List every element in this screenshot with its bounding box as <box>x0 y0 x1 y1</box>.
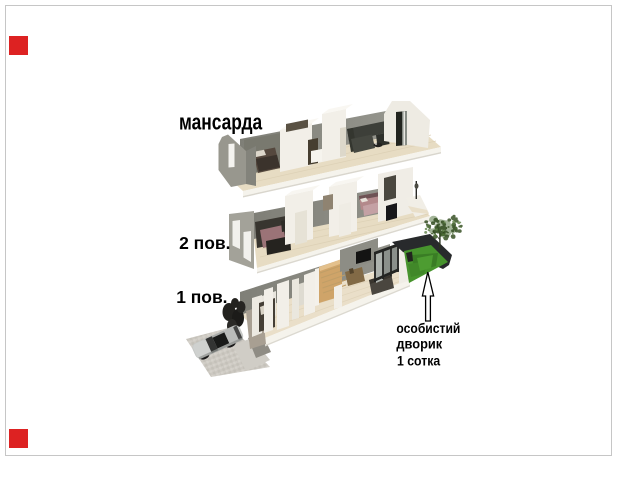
svg-text:дворик: дворик <box>396 336 442 351</box>
svg-text:мансарда: мансарда <box>179 111 263 135</box>
svg-text:2 пов.: 2 пов. <box>179 233 230 253</box>
svg-text:1 пов.: 1 пов. <box>176 287 227 307</box>
svg-text:1 сотка: 1 сотка <box>397 353 441 369</box>
svg-text:особистий: особистий <box>396 320 460 336</box>
